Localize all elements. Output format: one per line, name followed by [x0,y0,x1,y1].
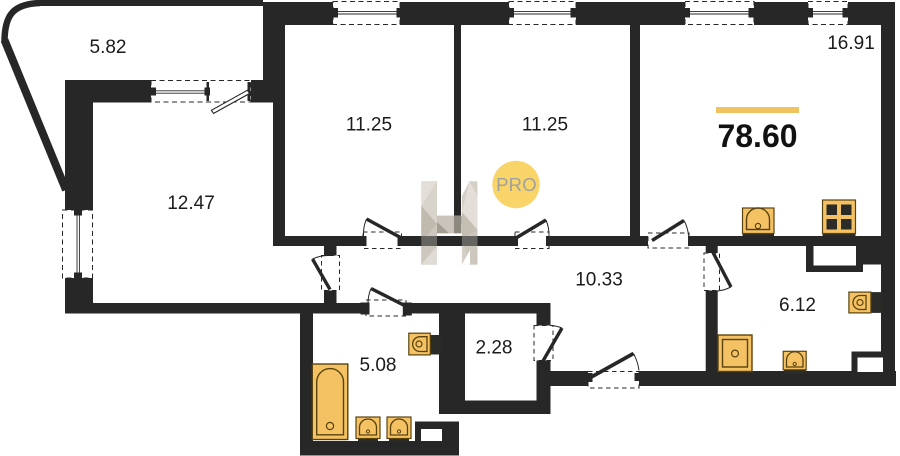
svg-text:11.25: 11.25 [346,115,392,136]
svg-text:11.25: 11.25 [522,115,568,136]
svg-text:78.60: 78.60 [717,118,797,154]
svg-text:12.47: 12.47 [167,193,215,214]
svg-text:10.33: 10.33 [575,270,623,291]
svg-text:5.08: 5.08 [360,355,397,376]
svg-text:16.91: 16.91 [827,33,875,54]
svg-text:5.82: 5.82 [90,37,127,58]
svg-text:PRO: PRO [496,174,537,195]
svg-text:2.28: 2.28 [476,338,513,359]
svg-text:6.12: 6.12 [779,295,816,316]
